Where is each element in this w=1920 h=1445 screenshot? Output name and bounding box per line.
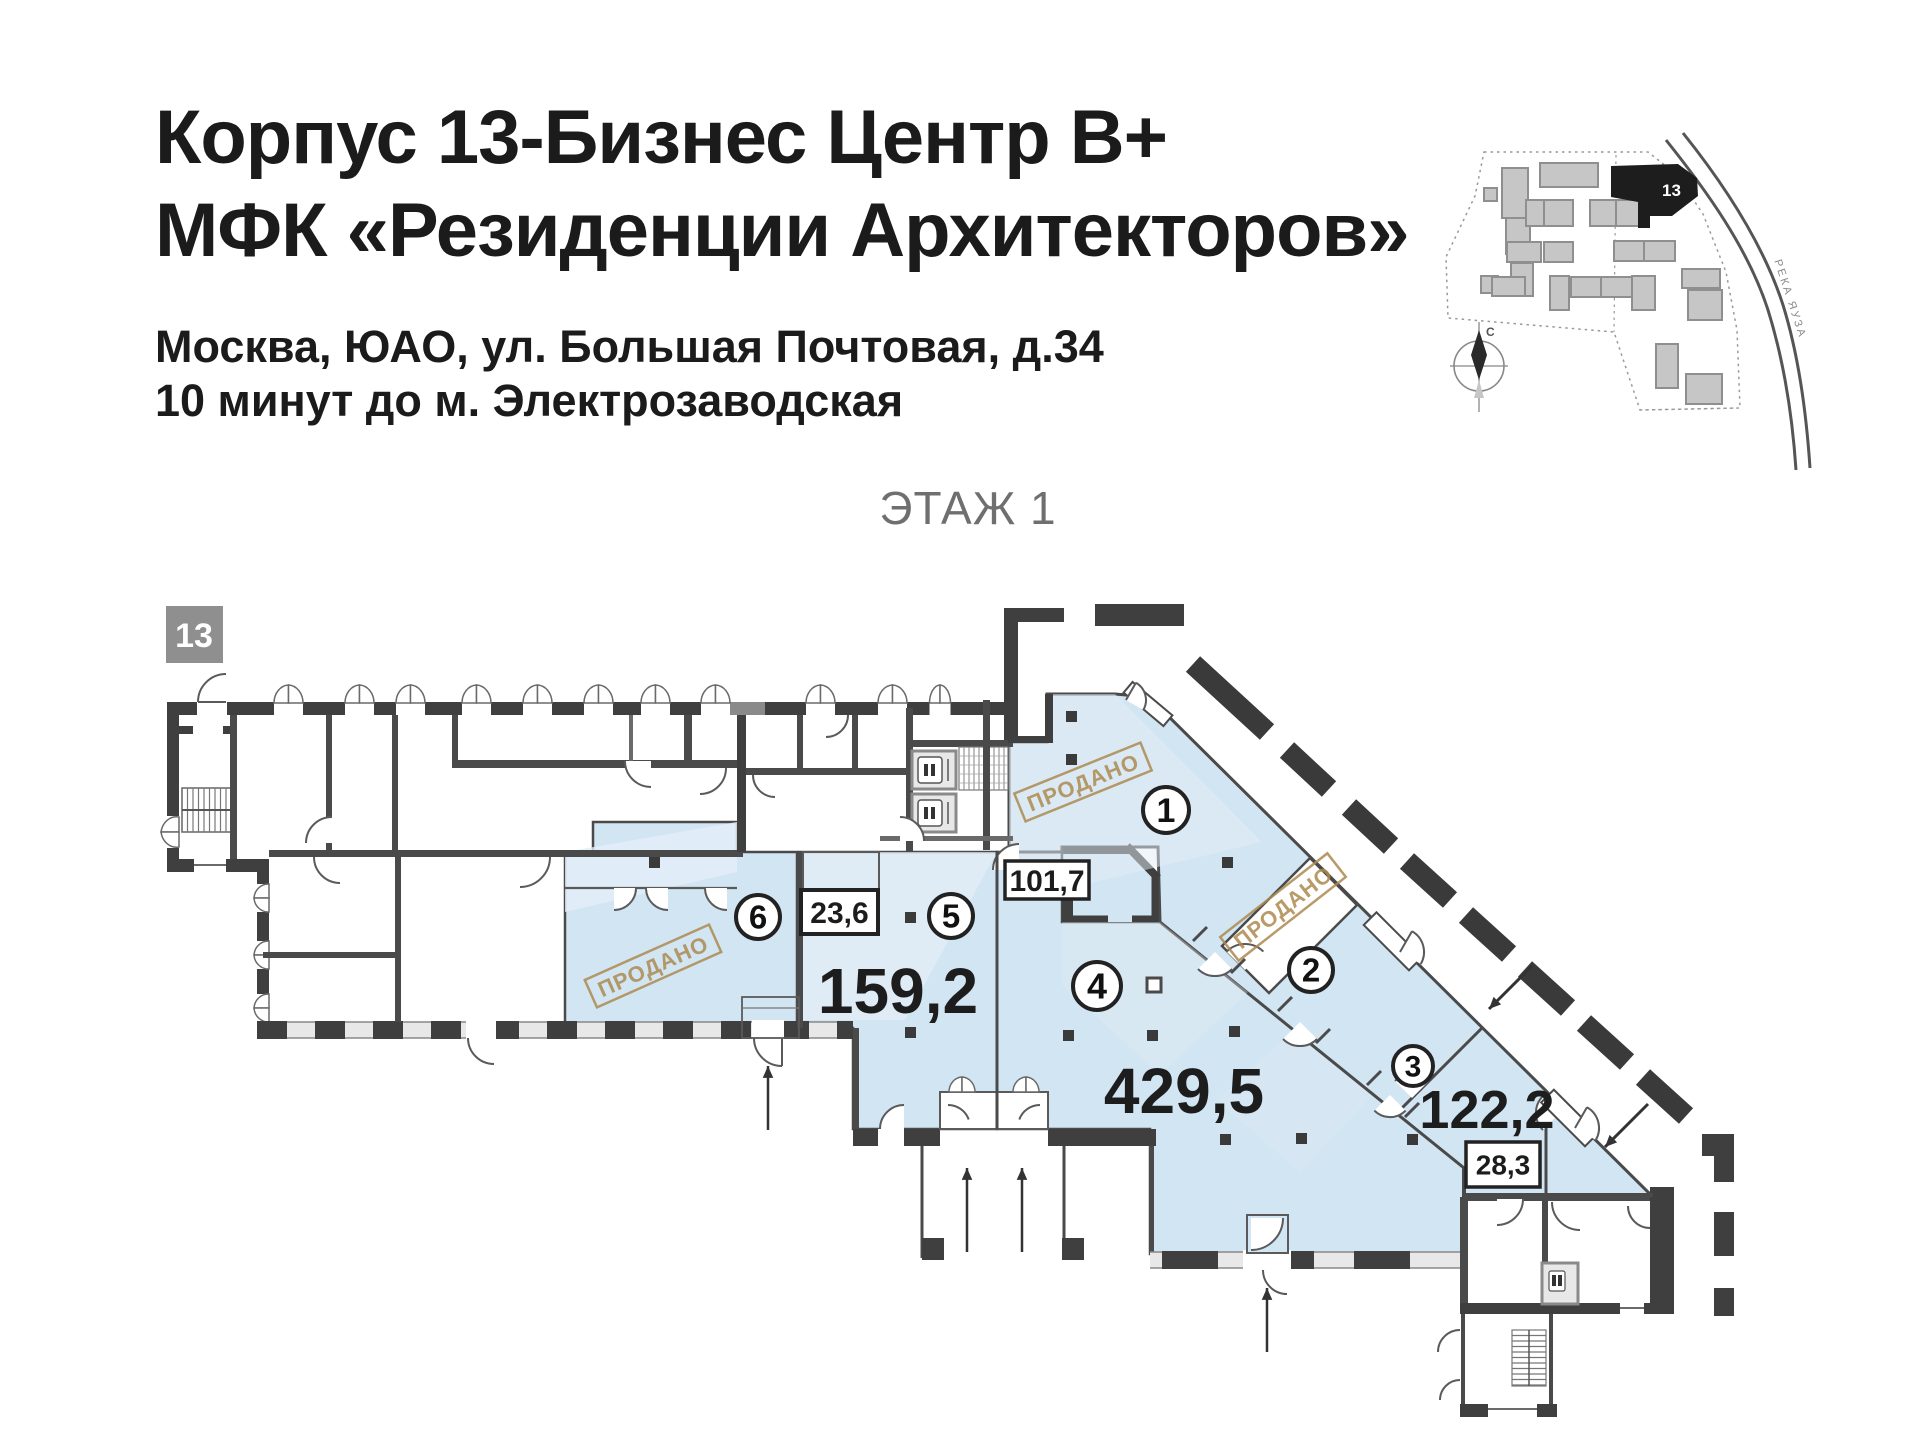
svg-text:5: 5: [942, 897, 960, 934]
svg-text:429,5: 429,5: [1104, 1055, 1264, 1127]
svg-text:1: 1: [1157, 792, 1176, 830]
svg-text:ЭТАЖ 1: ЭТАЖ 1: [879, 482, 1056, 534]
svg-text:Корпус 13-Бизнес Центр В+: Корпус 13-Бизнес Центр В+: [155, 95, 1167, 180]
svg-text:23,6: 23,6: [810, 897, 868, 930]
svg-text:2: 2: [1302, 951, 1320, 988]
svg-text:Москва, ЮАО, ул. Большая Почто: Москва, ЮАО, ул. Большая Почтовая, д.34: [155, 321, 1104, 372]
svg-text:28,3: 28,3: [1476, 1150, 1531, 1181]
svg-text:С: С: [1486, 325, 1495, 339]
svg-text:МФК «Резиденции Архитекторов»: МФК «Резиденции Архитекторов»: [155, 188, 1409, 273]
svg-text:3: 3: [1405, 1050, 1422, 1083]
svg-text:10 минут до м. Электрозаводска: 10 минут до м. Электрозаводская: [155, 375, 903, 426]
svg-text:4: 4: [1087, 965, 1107, 1006]
svg-text:159,2: 159,2: [818, 955, 978, 1027]
svg-text:13: 13: [175, 617, 213, 655]
svg-text:101,7: 101,7: [1009, 865, 1084, 898]
svg-text:122,2: 122,2: [1419, 1080, 1554, 1140]
svg-text:13: 13: [1662, 181, 1681, 200]
svg-text:6: 6: [749, 898, 767, 935]
